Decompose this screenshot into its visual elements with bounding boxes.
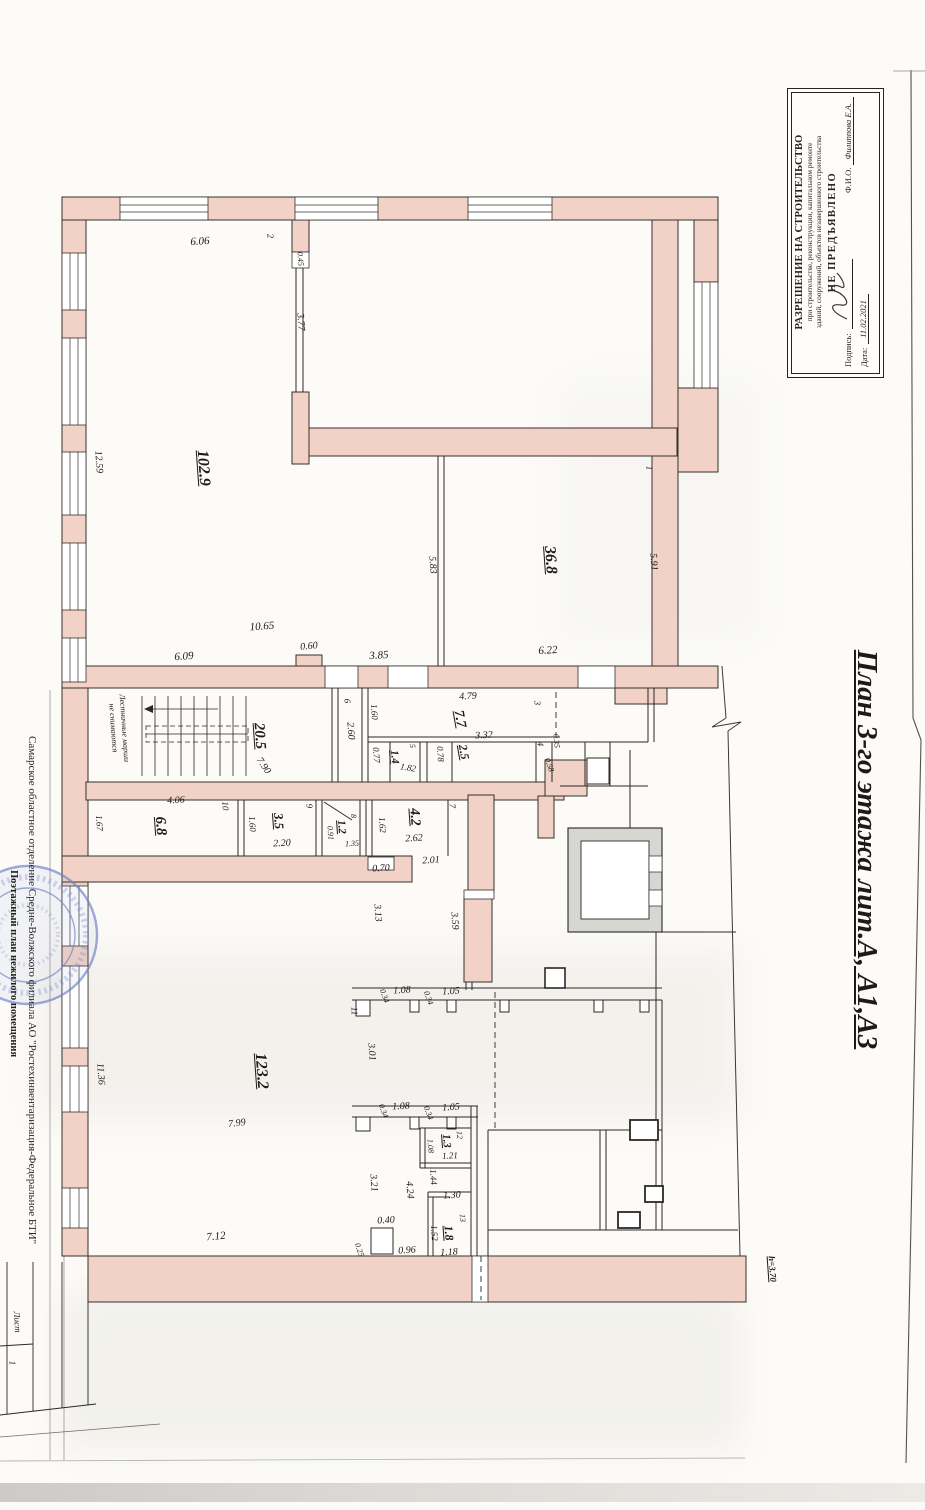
plan-label: 7.7 <box>451 709 468 729</box>
plan-label: 3.13 <box>371 904 382 922</box>
date-label: Дата: <box>859 348 869 367</box>
plan-label: 1.21 <box>442 1151 458 1161</box>
plan-label: 0.45 <box>296 252 305 267</box>
plan-label: h=3.70 <box>767 1256 778 1282</box>
plan-label: 5 <box>408 744 416 749</box>
plan-label: 0.34 <box>422 990 434 1006</box>
scanned-document-page: 6.0620.453.7712.59102.915.9136.85.8310.6… <box>0 0 925 1510</box>
permit-box: РАЗРЕШЕНИЕ НА СТРОИТЕЛЬСТВО при строител… <box>787 88 884 378</box>
plan-label: 1 <box>644 465 653 470</box>
organization-caption-text: Самарское областное отделение Средне-Вол… <box>22 736 42 1218</box>
plan-label: 2.62 <box>405 834 423 845</box>
plan-label: 1.52 <box>429 1225 439 1241</box>
plan-label: 0.34 <box>422 1105 434 1121</box>
plan-label: 0.34 <box>377 1103 389 1119</box>
plan-label: 3.5 <box>272 812 286 829</box>
plan-label: 4.2 <box>406 808 421 826</box>
plan-label: 1.2 <box>335 820 347 834</box>
plan-label: 3.77 <box>294 313 305 331</box>
plan-label: 10 <box>220 801 230 811</box>
signature-scribble-icon <box>827 271 853 323</box>
plan-label: 3.21 <box>367 1174 378 1192</box>
plan-label: 3.85 <box>369 650 389 662</box>
plan-label: 2.01 <box>422 856 440 867</box>
plan-label: 12 <box>455 1131 464 1140</box>
plan-label: 1.4 <box>388 750 400 764</box>
scan-shadow <box>0 1483 925 1502</box>
plan-label: 13 <box>458 1214 467 1223</box>
plan-label: 1.44 <box>428 1169 438 1185</box>
plan-label: 6.8 <box>152 816 168 836</box>
plan-label: 12.59 <box>92 450 104 473</box>
plan-label: Лист <box>12 1311 22 1333</box>
plan-label: 4 <box>535 741 544 746</box>
plan-label: 0.78 <box>435 746 445 762</box>
plan-label: 1.18 <box>440 1248 458 1259</box>
permit-date-row: Дата: 11.02.2021 <box>858 97 869 367</box>
document-type-caption: Поэтажный план нежилого помещения <box>4 870 22 1046</box>
plan-label: 1 <box>7 1360 16 1365</box>
plan-label: 1.8 <box>442 1225 455 1241</box>
permit-subtitle-1: при строительстве, реконструкции, капита… <box>805 97 814 367</box>
plan-label: 8 <box>349 814 357 819</box>
plan-label: 1.82 <box>399 762 416 774</box>
plan-label: 1.08 <box>392 1102 410 1113</box>
plan-label: 6.22 <box>538 645 558 657</box>
plan-label: 0.58 <box>543 757 555 773</box>
plan-label: 4.24 <box>403 1181 414 1199</box>
plan-label: 102.9 <box>194 449 212 486</box>
plan-label: 0.35 <box>552 734 561 749</box>
fio-row: Ф.И.О. Филиппова Е.А. <box>843 97 853 193</box>
plan-label: 7.90 <box>254 756 272 776</box>
plan-label: 0.25 <box>353 1242 365 1258</box>
plan-label: 7 <box>447 803 456 808</box>
plan-label: 3.01 <box>365 1043 376 1061</box>
plan-label: 5.91 <box>647 553 658 571</box>
plan-label: 2.20 <box>273 839 291 850</box>
signature-line <box>843 259 853 329</box>
plan-label: 6.09 <box>174 651 194 663</box>
plan-label: 1.05 <box>442 1103 460 1114</box>
date-value: 11.02.2021 <box>858 294 869 344</box>
plan-label: 1.67 <box>94 815 104 831</box>
plan-label: 10.65 <box>249 621 274 634</box>
plan-label: 7.12 <box>206 1231 226 1244</box>
plan-label: 2 <box>265 233 274 238</box>
plan-label: 1.05 <box>442 987 460 998</box>
plan-label: не снимаются <box>107 703 118 752</box>
plan-label: 123.2 <box>252 1052 270 1089</box>
permit-title: РАЗРЕШЕНИЕ НА СТРОИТЕЛЬСТВО <box>794 97 805 367</box>
plan-label: 6.06 <box>190 236 210 248</box>
plan-label: 1.60 <box>369 704 379 720</box>
plan-label: 0.70 <box>372 864 390 875</box>
plan-label: 3.59 <box>448 912 459 930</box>
organization-caption: Самарское областное отделение Средне-Вол… <box>22 736 42 1218</box>
plan-label: 3.32 <box>475 731 493 742</box>
plan-label: 6 <box>342 698 351 703</box>
fio-label: Ф.И.О. <box>843 168 853 193</box>
plan-label: 11.36 <box>94 1063 105 1085</box>
plan-label: 2.60 <box>344 722 355 740</box>
plan-label: 4.79 <box>459 692 477 703</box>
plan-label: 0.40 <box>377 1216 395 1227</box>
plan-label: 3 <box>532 700 541 705</box>
plan-label: 0.60 <box>300 641 318 653</box>
plan-label: 20.5 <box>251 722 268 749</box>
plan-label: 1.30 <box>443 1191 461 1202</box>
document-type-caption-text: Поэтажный план нежилого помещения <box>4 870 22 1046</box>
plan-label: 7.99 <box>228 1118 247 1130</box>
plan-label: 1.3 <box>440 1134 452 1148</box>
permit-box-content: РАЗРЕШЕНИЕ НА СТРОИТЕЛЬСТВО при строител… <box>792 93 879 371</box>
plan-label: 1.62 <box>377 817 387 833</box>
page-title: План 3-го этажа лит.А, А1,А3 <box>838 592 896 1107</box>
plan-label: 9 <box>304 803 313 808</box>
permit-signature-row: Подпись: Ф.И.О. Филиппова Е.А. <box>843 97 853 367</box>
plan-label: 4.06 <box>167 796 185 807</box>
fio-value: Филиппова Е.А. <box>843 97 854 165</box>
plan-label: 1.60 <box>247 816 257 832</box>
plan-label: 0.91 <box>326 826 335 841</box>
plan-label: 36.8 <box>541 545 559 574</box>
plan-label: 5.83 <box>426 556 437 574</box>
plan-label: 0.34 <box>378 988 390 1004</box>
signature-label: Подпись: <box>843 333 853 367</box>
page-title-text: План 3-го этажа лит.А, А1,А3 <box>838 592 896 1107</box>
plan-label: 11 <box>349 1007 359 1016</box>
plan-label: 1.08 <box>426 1139 435 1154</box>
plan-label: 0.96 <box>398 1246 416 1257</box>
plan-label: 0.77 <box>371 747 381 763</box>
permit-subtitle-2: зданий, сооружений, объектов незавершенн… <box>814 97 823 367</box>
plan-label: 1.08 <box>393 986 411 997</box>
plan-label: 1.35 <box>345 840 359 849</box>
permit-status: НЕ ПРЕДЪЯВЛЕНО <box>827 97 838 367</box>
plan-label: 2.5 <box>457 744 471 761</box>
